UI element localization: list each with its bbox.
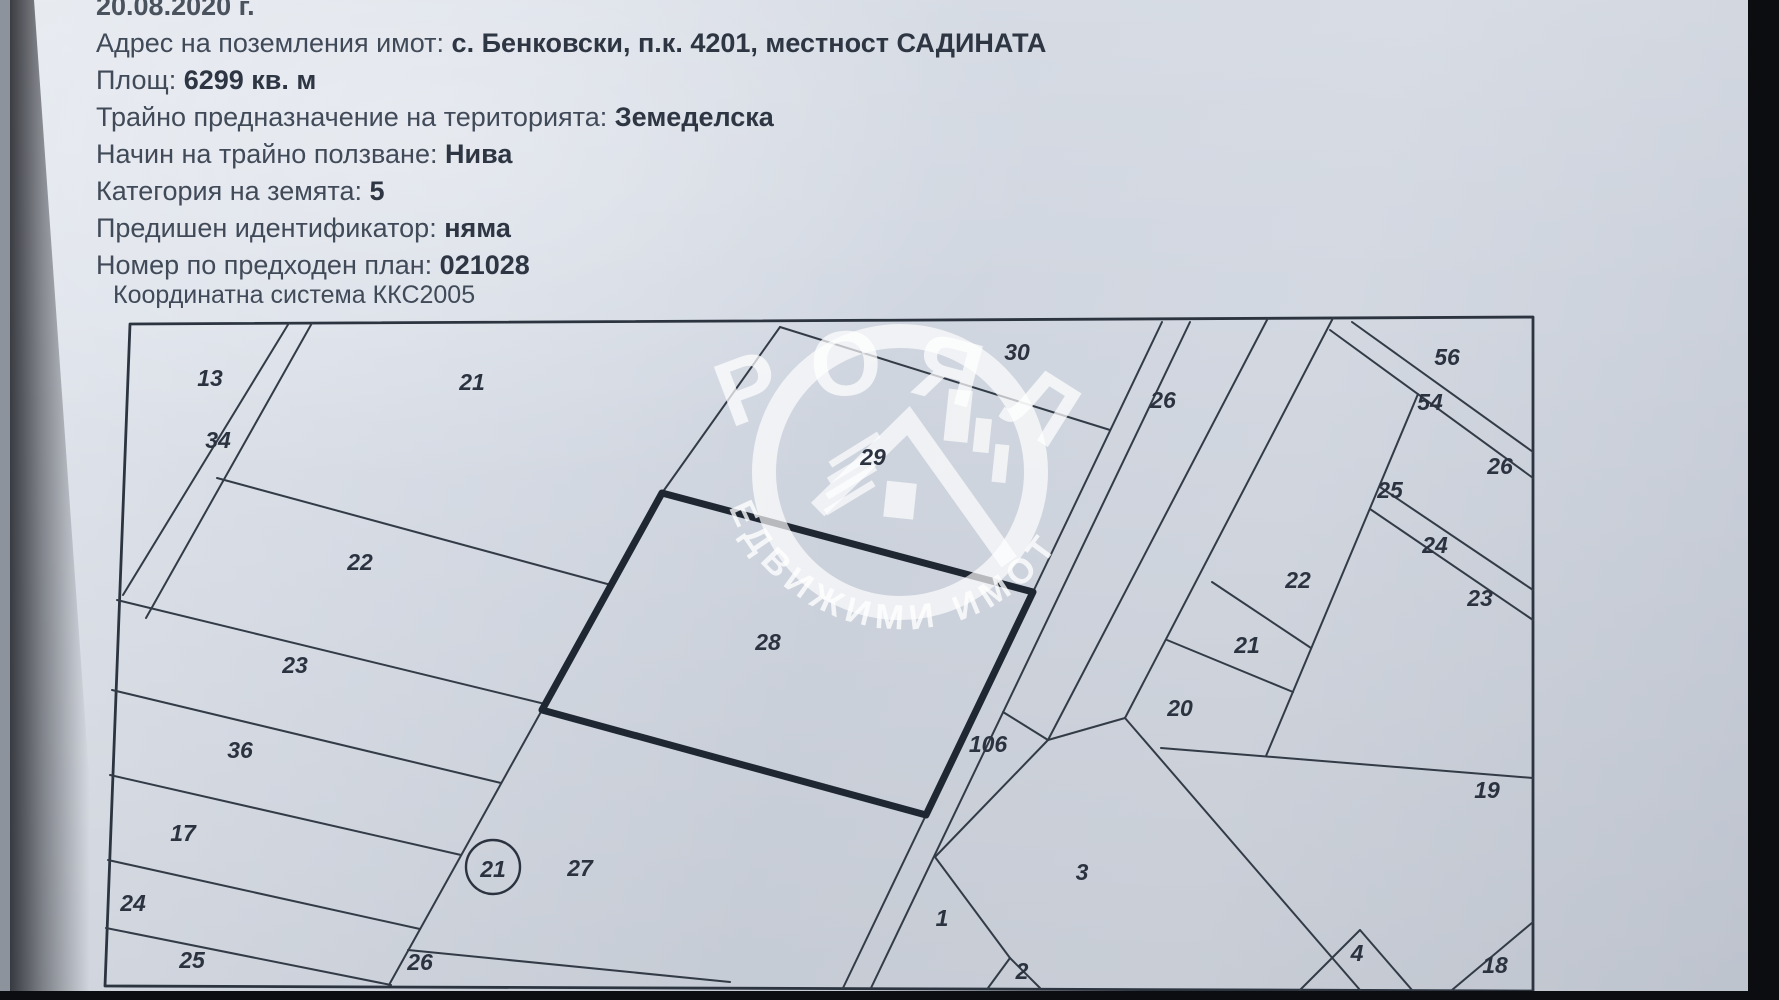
boundary-line-33 — [1360, 930, 1412, 990]
parcel-label-106-14: 106 — [969, 731, 1008, 757]
map-outer-border — [105, 317, 1533, 991]
boundary-line-6 — [108, 860, 420, 929]
boundary-line-4 — [112, 690, 501, 783]
boundary-line-0 — [123, 323, 289, 595]
document-date: 20.08.2020 г. — [96, 0, 1046, 25]
parcel-label-54-20: 54 — [1417, 389, 1443, 415]
parcel-label-17-6: 17 — [170, 820, 197, 846]
parcel-label-25-8: 25 — [178, 947, 206, 973]
parcel-label-23-4: 23 — [281, 652, 308, 678]
boundary-line-30 — [988, 958, 1010, 988]
parcel-label-30-13: 30 — [1004, 339, 1030, 365]
parcel-number-labels: 1321342223361724252627282930106261235654… — [119, 339, 1513, 984]
parcel-label-27-10: 27 — [566, 855, 594, 881]
parcel-label-3-18: 3 — [1076, 859, 1089, 885]
parcel-label-26-21: 26 — [1486, 453, 1513, 479]
boundary-line-20 — [1161, 748, 1533, 778]
parcel-label-22-3: 22 — [346, 549, 373, 575]
parcel-label-21-26: 21 — [1233, 632, 1260, 658]
info-line-0: Адрес на поземления имот: с. Бенковски, … — [96, 25, 1046, 62]
info-line-5: Предишен идентификатор: няма — [96, 210, 1046, 247]
parcel-label-25-22: 25 — [1376, 477, 1404, 503]
boundary-line-3 — [117, 600, 545, 704]
boundary-line-27 — [1370, 509, 1533, 620]
parcel-label-20-27: 20 — [1166, 695, 1193, 721]
boundary-line-5 — [110, 775, 461, 855]
parcel-label-56-19: 56 — [1434, 344, 1460, 370]
parcel-label-34-2: 34 — [205, 427, 231, 453]
parcel-label-23-24: 23 — [1466, 585, 1493, 611]
parcel-label-24-23: 24 — [1421, 532, 1448, 558]
circled-parcel-label-21: 21 — [466, 840, 520, 894]
property-info-lines: Адрес на поземления имот: с. Бенковски, … — [96, 25, 1046, 284]
info-line-1: Площ: 6299 кв. м — [96, 62, 1046, 99]
boundary-line-9 — [408, 950, 730, 982]
boundary-line-19 — [1125, 718, 1360, 990]
parcel-label-26-15: 26 — [1149, 387, 1176, 413]
parcel-label-28-11: 28 — [754, 629, 781, 655]
parcel-label-2-17: 2 — [1015, 958, 1029, 984]
boundary-line-24 — [1352, 322, 1533, 452]
boundary-line-17 — [1003, 712, 1048, 740]
parcel-label-21-1: 21 — [458, 369, 485, 395]
info-line-2: Трайно предназначение на територията: Зе… — [96, 99, 1046, 136]
boundary-line-23 — [1167, 640, 1293, 692]
boundary-line-26 — [1380, 487, 1533, 590]
boundary-line-1 — [146, 323, 312, 618]
boundary-line-8 — [389, 710, 542, 985]
document-header-text: 20.08.2020 г. Адрес на поземления имот: … — [96, 0, 1046, 284]
boundary-line-18 — [1048, 718, 1125, 740]
parcel-label-26-9: 26 — [406, 949, 433, 975]
info-line-4: Категория на земята: 5 — [96, 173, 1046, 210]
parcel-label-36-5: 36 — [227, 737, 253, 763]
photo-dark-background-bottom — [0, 991, 1779, 1000]
boundary-line-16 — [1125, 318, 1333, 718]
boundary-line-2 — [217, 478, 611, 585]
cadastral-document-photo: 20.08.2020 г. Адрес на поземления имот: … — [0, 0, 1779, 1000]
circled-label-text: 21 — [479, 856, 506, 882]
parcel-label-13-0: 13 — [197, 365, 223, 391]
royal-realty-watermark: РОЯЛ НЕДВИЖИМИ ИМОТИ — [674, 289, 1125, 659]
coordinate-system-label: Координатна система ККС2005 — [113, 281, 475, 310]
parcel-label-18-30: 18 — [1482, 952, 1508, 978]
parcel-label-19-28: 19 — [1474, 777, 1500, 803]
parcel-label-22-25: 22 — [1284, 567, 1311, 593]
parcel-label-29-12: 29 — [859, 444, 886, 470]
info-line-6: Номер по предходен план: 021028 — [96, 247, 1046, 284]
info-line-3: Начин на трайно ползване: Нива — [96, 136, 1046, 173]
parcel-boundary-lines — [105, 317, 1533, 991]
photo-left-edge — [0, 0, 10, 1000]
photo-dark-background-right — [1748, 0, 1779, 1000]
parcel-label-4-29: 4 — [1350, 940, 1364, 966]
parcel-label-1-16: 1 — [936, 905, 949, 931]
boundary-line-7 — [106, 928, 391, 985]
parcel-label-24-7: 24 — [119, 890, 146, 916]
